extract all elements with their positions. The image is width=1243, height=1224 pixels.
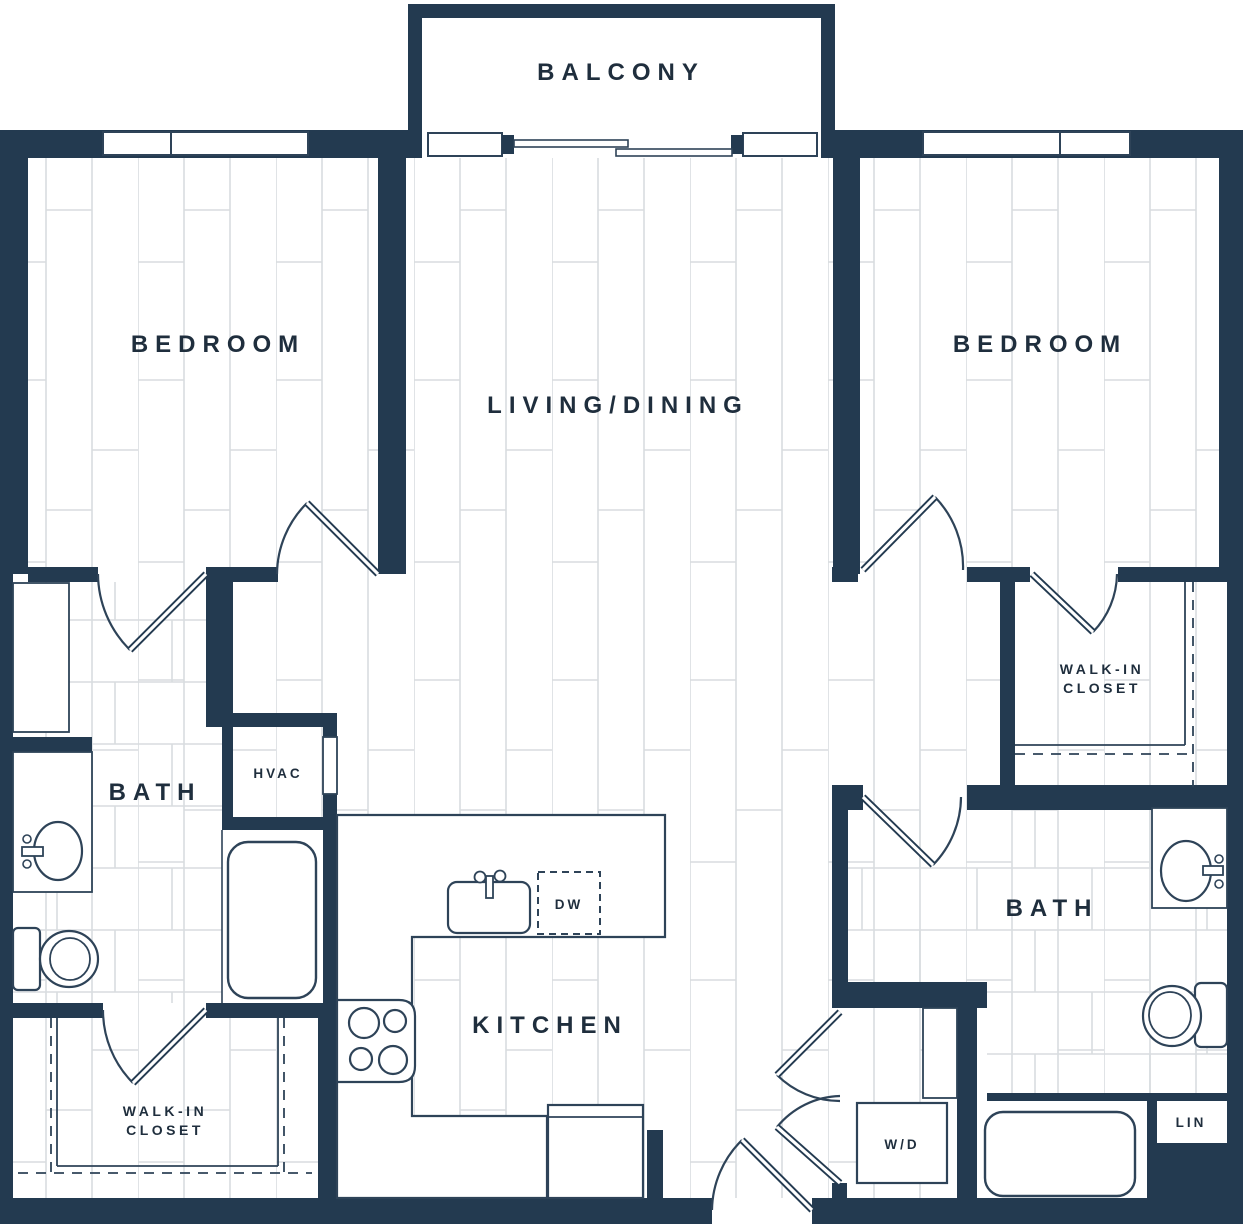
wd-door-panel [923, 1008, 957, 1098]
label-hvac: HVAC [253, 766, 302, 781]
tub-niche-east-wall [323, 830, 337, 1003]
linen-corner-block [1147, 1143, 1243, 1198]
window-balcony-left [428, 133, 502, 156]
closet-left-east-wall [318, 1018, 337, 1198]
window-balcony-right [743, 133, 817, 156]
bedroom-right-bottom-wall-c [1118, 567, 1227, 582]
label-bath-left: BATH [109, 779, 202, 806]
right-wall-lower [1227, 574, 1243, 1224]
right-wall-upper [1219, 130, 1243, 574]
hvac-top-wall [233, 713, 337, 727]
left-wall-lower [0, 574, 13, 1224]
balcony-wall-left [408, 4, 422, 158]
kitchen-faucet-knob-right [495, 871, 506, 882]
floor-plan: BALCONY BEDROOM BEDROOM LIVING/DINING BA… [0, 0, 1243, 1224]
left-wall-upper [0, 130, 28, 574]
bath-right-bottom-wall [987, 1093, 1227, 1101]
closet-left-top-wall-b [206, 1003, 337, 1018]
vanity-left-knob-top [23, 835, 31, 843]
bedroom-left-east-wall [378, 158, 406, 574]
balcony-wall-top [408, 4, 835, 18]
balcony-wall-right [821, 4, 835, 158]
label-dishwasher: DW [555, 897, 584, 912]
hvac-bottom-wall [222, 817, 337, 830]
window-bedroom-left [103, 132, 308, 155]
label-kitchen: KITCHEN [472, 1012, 628, 1039]
bath-right-top-wall-b [967, 785, 1227, 810]
hvac-east-stub-upper [323, 713, 337, 737]
toilet-right-bowl [1143, 986, 1201, 1046]
closet-right-west-wall [1000, 574, 1015, 797]
label-balcony: BALCONY [537, 59, 705, 86]
label-washer-dryer: W/D [884, 1137, 919, 1152]
toilet-left-tank [13, 928, 40, 990]
wd-closet-west-stub [832, 1183, 847, 1198]
bottom-wall-right [812, 1198, 1243, 1224]
bedroom-right-west-wall [833, 158, 860, 574]
label-bedroom-right: BEDROOM [953, 331, 1127, 358]
bathtub-right [985, 1112, 1135, 1196]
bedroom-left-bottom-wall-a [28, 567, 98, 582]
label-walkin-right-2: CLOSET [1063, 680, 1141, 696]
bedroom-right-bottom-wall-b [967, 567, 1030, 582]
vanity-right-knob-top [1215, 855, 1223, 863]
label-walkin-left-2: CLOSET [126, 1122, 204, 1138]
bath-left-stub-wall [13, 737, 92, 752]
hvac-door [323, 737, 337, 794]
label-bedroom-left: BEDROOM [131, 331, 305, 358]
bedroom-right-bottom-wall-a [832, 567, 858, 582]
bathtub-left [228, 842, 316, 998]
bath-right-west-wall [832, 785, 848, 990]
vanity-right-faucet [1203, 866, 1223, 875]
floor-plan-page: BALCONY BEDROOM BEDROOM LIVING/DINING BA… [0, 0, 1243, 1224]
label-walkin-right-1: WALK-IN [1060, 661, 1144, 677]
label-bath-right: BATH [1006, 895, 1099, 922]
closet-left-top-wall-a [13, 1003, 103, 1018]
window-bedroom-right [923, 132, 1130, 155]
wd-closet-east-wall [957, 982, 977, 1198]
bath-left-east-wall-lower [222, 727, 233, 830]
kitchen-faucet-knob-left [475, 872, 486, 883]
openings [103, 130, 1130, 158]
refrigerator [548, 1105, 643, 1198]
vanity-right-knob-bottom [1215, 880, 1223, 888]
label-linen: LIN [1176, 1115, 1207, 1130]
bath-left-east-wall-upper [206, 567, 233, 727]
label-walkin-left-1: WALK-IN [123, 1103, 207, 1119]
hvac-east-stub-lower [323, 794, 337, 817]
vanity-left-knob-bottom [23, 860, 31, 868]
slider-jamb-left [502, 135, 514, 154]
sliding-door-panel-b [616, 149, 732, 156]
kitchen-faucet-stem [486, 876, 493, 898]
bath-left-shelf-cabinet [13, 583, 69, 732]
kitchen-stub-wall [647, 1130, 663, 1198]
sliding-door-panel-a [514, 140, 628, 147]
label-living-dining: LIVING/DINING [487, 392, 749, 419]
vanity-left-faucet [22, 847, 43, 856]
bottom-wall-left [0, 1198, 712, 1224]
